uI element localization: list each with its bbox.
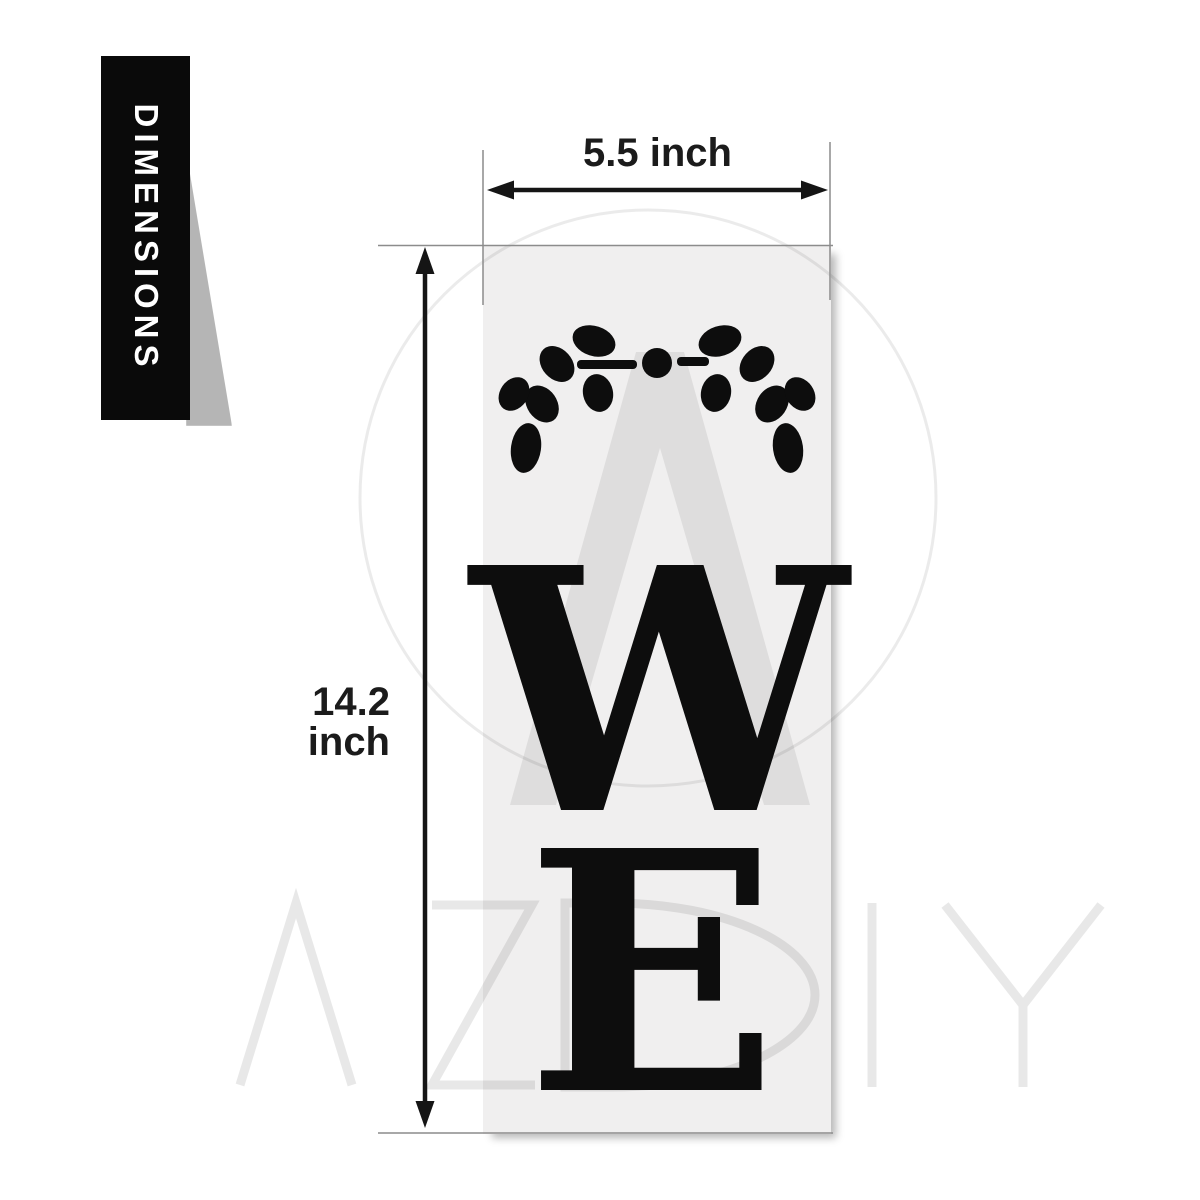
height-dimension-label: 14.2 inch bbox=[230, 682, 390, 762]
dimensions-banner: DIMENSIONS bbox=[101, 56, 190, 420]
watermark-letter-y bbox=[945, 905, 1101, 1087]
product-dimensions-image: W E 5.5 inch 14.2 inch DIMENSIONS bbox=[0, 0, 1200, 1200]
width-dimension-arrow bbox=[487, 181, 828, 200]
watermark-letter-z bbox=[432, 905, 535, 1085]
dimensions-banner-label: DIMENSIONS bbox=[127, 103, 165, 372]
width-dimension-label: 5.5 inch bbox=[487, 133, 828, 173]
watermark-letter-a bbox=[240, 903, 352, 1085]
stencil-letter-e: E bbox=[525, 779, 778, 1169]
